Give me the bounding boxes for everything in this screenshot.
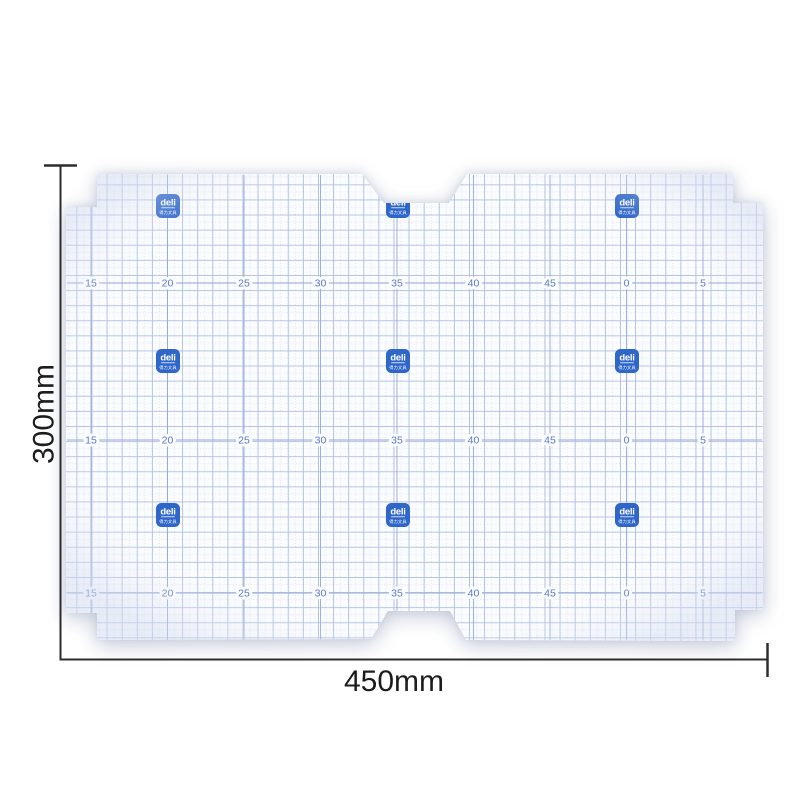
book-cover-sheet: 1520253035404505152025303540450515202530… <box>66 174 763 641</box>
height-dimension-label: 300mm <box>28 364 61 464</box>
width-dimension-label: 450mm <box>344 665 444 698</box>
product-dimension-image: 1520253035404505152025303540450515202530… <box>0 0 800 801</box>
scene: 1520253035404505152025303540450515202530… <box>0 0 800 801</box>
sheet-vignette <box>66 174 763 641</box>
width-dimension: 450mm <box>60 643 769 698</box>
